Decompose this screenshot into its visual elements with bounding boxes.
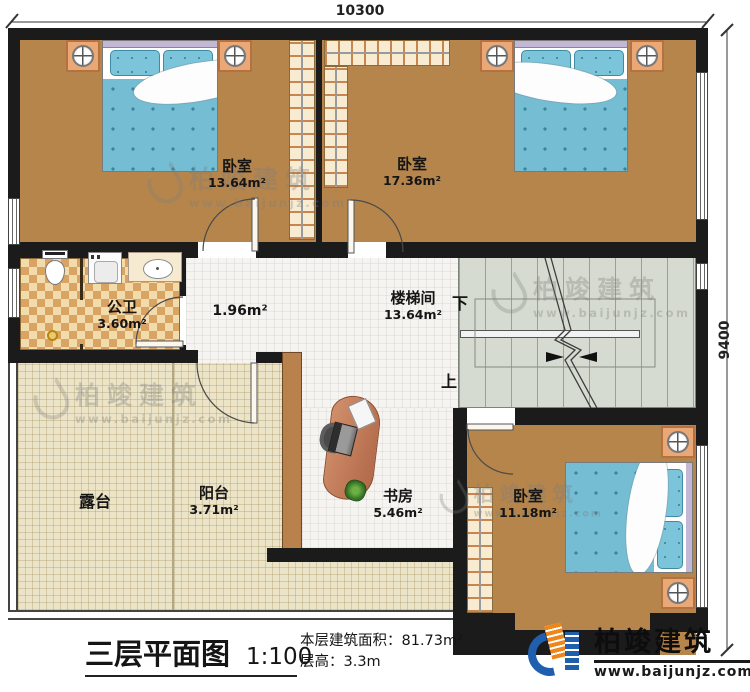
plan-title: 三层平面图 [85,631,230,673]
door-arc-bedroom-tl [203,199,255,251]
label-balcony: 阳台 3.71m² [178,485,250,517]
dimension-lines [6,14,733,656]
label-bedroom-tl: 卧室 13.64m² [192,158,282,190]
stair-arrow-right [579,352,597,362]
title-block: 三层平面图 1:100 [85,631,312,677]
label-stairs-up: 上 [441,368,457,392]
label-study: 书房 5.46m² [362,488,434,520]
floor-height-note: 层高：3.3m [300,652,463,673]
label-stairwell: 楼梯间 13.64m² [378,290,448,322]
door-leaf-bathroom [136,341,183,347]
title-underline [85,675,297,677]
label-bedroom-tr: 卧室 17.36m² [367,156,457,188]
door-arc-bedroom-br [468,429,513,474]
door-leaf-bedroom-br [467,424,513,430]
label-bedroom-br: 卧室 11.18m² [490,488,566,520]
brand-name: 柏竣建筑 [594,620,750,659]
dimension-width: 10300 [330,3,390,19]
door-leaf-balcony [251,363,257,423]
plan-linework [0,0,750,692]
stair-break-line [545,258,597,408]
label-stairs-down: 下 [452,290,468,314]
label-bathroom: 公卫 3.60m² [86,299,158,331]
door-leaf-bedroom-tl [252,198,258,251]
door-leaf-bedroom-tr [348,200,354,253]
brand-logo: 柏竣建筑 www.baijunjz.com [528,620,750,680]
door-arc-bedroom-tr [351,200,403,252]
stair-arrow-left [546,352,564,362]
brand-logo-icon [528,620,586,680]
label-terrace: 露台 [60,493,130,512]
brand-url: www.baijunjz.com [594,660,750,680]
floor-area-note: 本层建筑面积：81.73m² [300,631,463,652]
floor-plan-page: 柏竣建筑www.baijunjz.com 柏竣建筑www.baijunjz.co… [0,0,750,692]
area-notes: 本层建筑面积：81.73m² 层高：3.3m [300,631,463,673]
door-arc-balcony [197,363,254,423]
label-hall-area: 1.96m² [200,303,280,320]
dimension-height: 9400 [717,310,733,370]
